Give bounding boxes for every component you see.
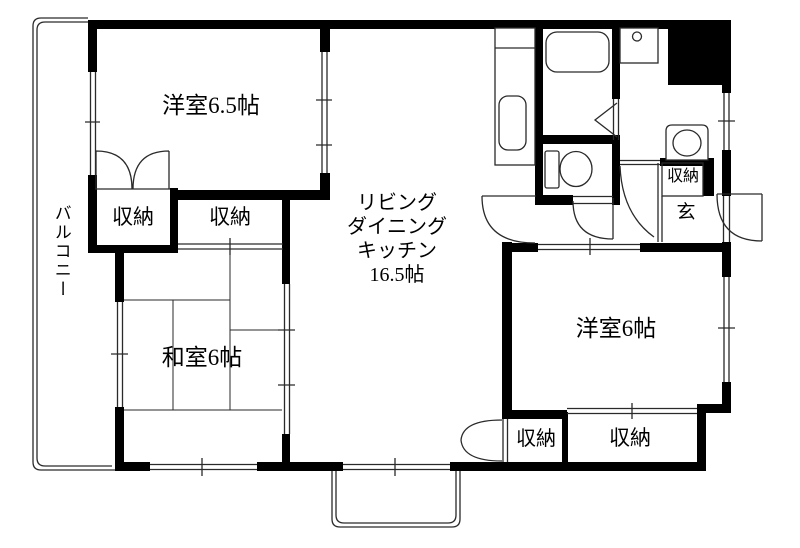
ldk-label-line2: ダイニング <box>287 216 507 240</box>
room-label-ldk: リビング ダイニング キッチン 16.5帖 <box>287 192 507 288</box>
kitchen-counter <box>495 28 535 165</box>
closet-label-south-large: 収納 <box>580 427 680 450</box>
closet-label-south-small: 収納 <box>486 428 586 450</box>
door-jamb-washroom <box>620 161 660 165</box>
kitchen-sink <box>499 96 526 150</box>
tatami-grid <box>124 253 282 410</box>
door-jamb-entrance <box>724 196 730 242</box>
door-closet-bedroom1 <box>95 151 170 189</box>
toilet <box>545 151 592 188</box>
door-washroom <box>620 166 654 237</box>
sliding-door-closet-large <box>567 403 697 419</box>
pipe-shaft <box>668 20 731 85</box>
window-bedroom1-west <box>85 72 100 175</box>
window-bedroom2-east <box>718 277 735 382</box>
balcony-outline <box>33 18 115 470</box>
closet-label-bedroom1-left: 収納 <box>83 206 183 229</box>
entrance-label: 玄 <box>656 203 716 224</box>
washing-machine-pan <box>620 28 658 63</box>
floorplan: 洋室6.5帖 リビング ダイニング キッチン 16.5帖 和室6帖 洋室6帖 バ… <box>0 0 800 548</box>
ldk-label-line4: 16.5帖 <box>287 264 507 288</box>
wash-basin <box>666 125 708 160</box>
ldk-label-line1: リビング <box>287 192 507 216</box>
porch-outline <box>332 471 460 527</box>
sliding-door-bedroom2-top <box>538 238 640 255</box>
window-washitsu-south <box>150 458 257 476</box>
closet-label-bedroom1-right: 収納 <box>180 206 280 229</box>
balcony-label: バルコニー <box>51 186 70 316</box>
door-jamb-toilet <box>573 197 613 204</box>
bathtub <box>546 32 609 72</box>
window-washroom-east <box>718 93 735 150</box>
window-ldk-south <box>343 458 450 476</box>
room-label-washitsu: 和室6帖 <box>102 345 302 370</box>
room-label-western2: 洋室6帖 <box>516 316 716 341</box>
room-label-western1: 洋室6.5帖 <box>71 93 351 118</box>
fusuma-closet-washitsu <box>178 238 283 255</box>
closet-label-entrance: 収納 <box>653 168 713 186</box>
ldk-label-line3: キッチン <box>287 240 507 264</box>
